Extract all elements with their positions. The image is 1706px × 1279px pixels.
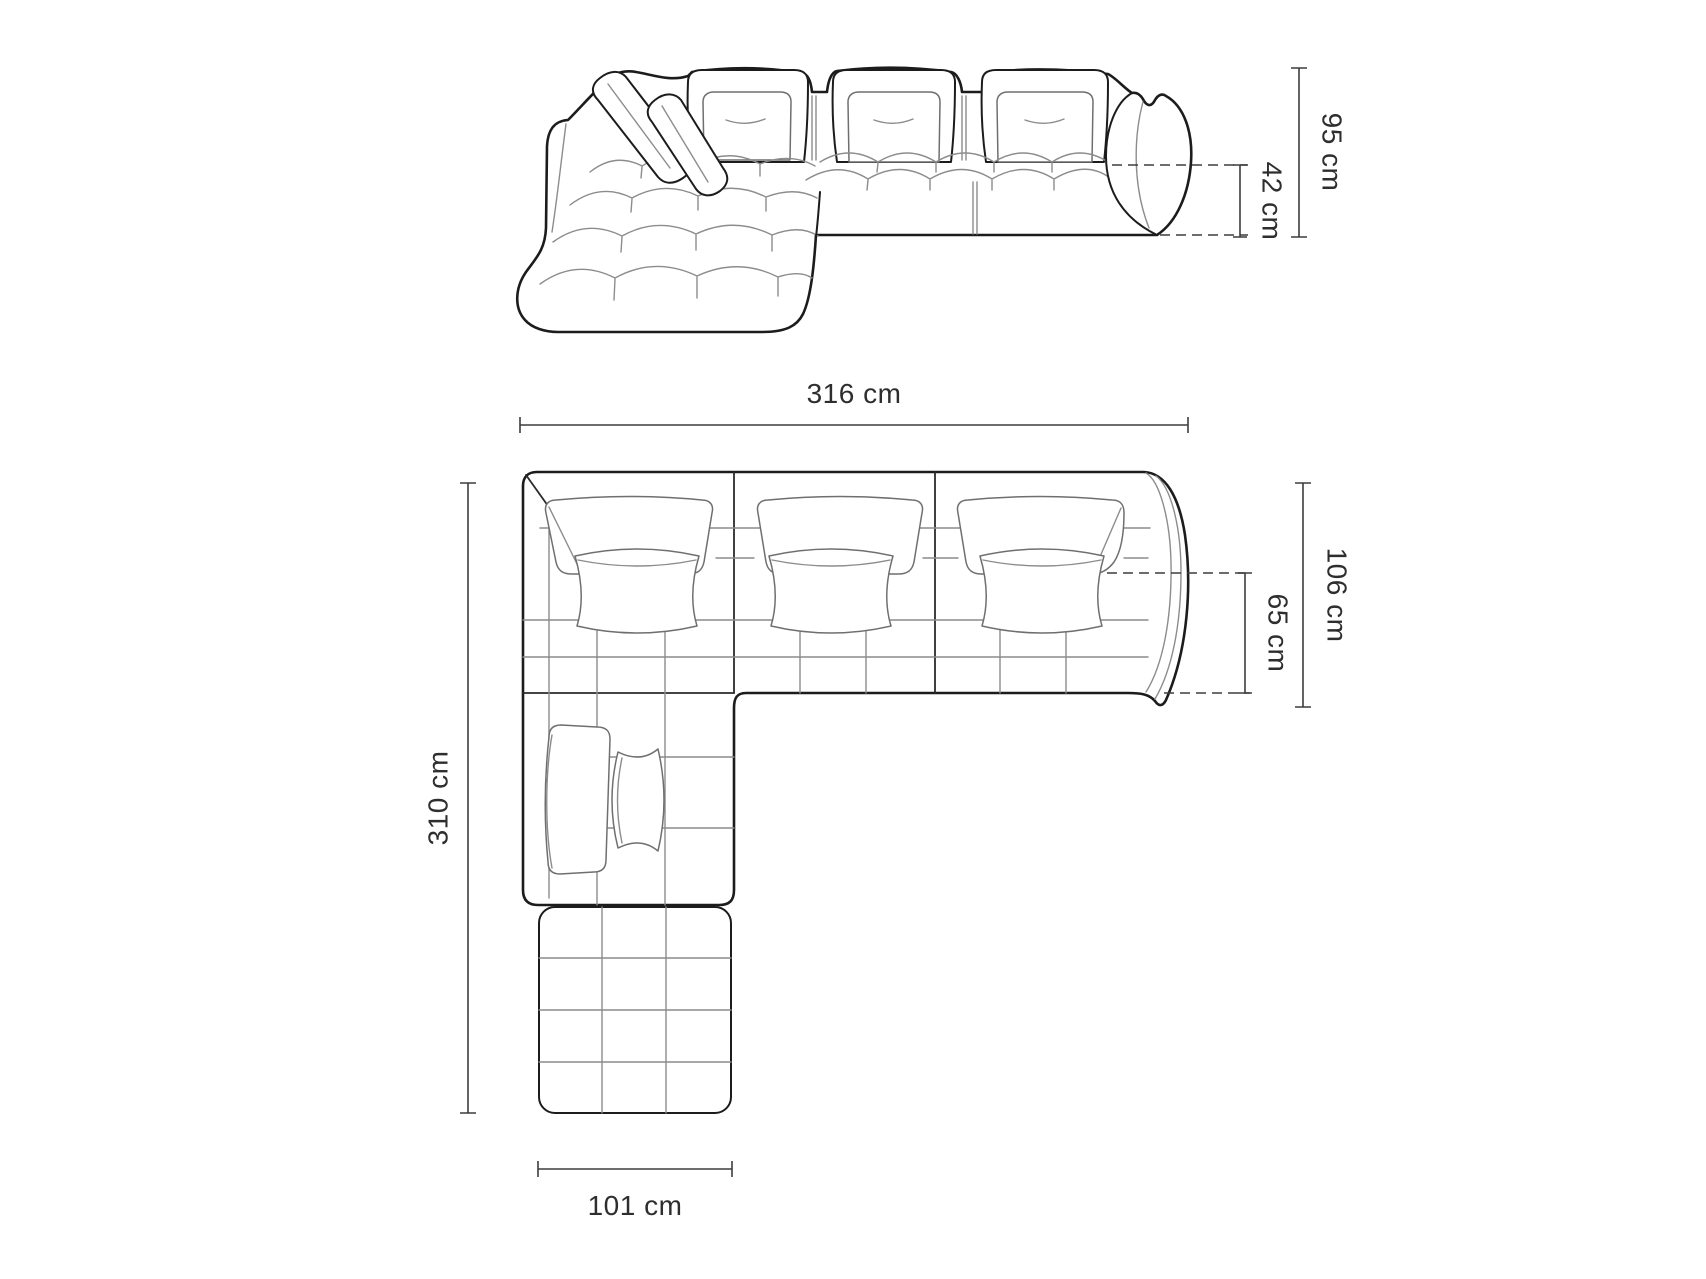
dim-label-total-length: 310 cm [423, 751, 454, 846]
dim-label-total-height: 95 cm [1317, 113, 1348, 192]
sofa-dimension-diagram: 95 cm 42 cm [0, 0, 1706, 1279]
dim-total-height: 95 cm [1291, 68, 1348, 237]
plan-throw-pillow-3 [980, 549, 1104, 633]
dim-label-seat-height: 42 cm [1257, 162, 1288, 241]
dim-label-total-depth: 106 cm [1322, 548, 1353, 643]
dim-total-length: 310 cm [423, 483, 477, 1113]
plan-chaise-pillow [612, 749, 664, 851]
plan-throw-pillow-2 [769, 549, 893, 633]
plan-chaise-back-cushion [545, 725, 610, 874]
diagram-canvas: 95 cm 42 cm [0, 0, 1706, 1279]
throw-pillow-2 [848, 92, 940, 162]
dim-total-width: 316 cm [520, 378, 1188, 433]
dim-label-seat-depth: 65 cm [1263, 594, 1294, 673]
throw-pillow-1 [703, 92, 791, 160]
dim-chaise-width: 101 cm [538, 1161, 732, 1221]
dim-seat-height: 42 cm [1233, 162, 1288, 241]
dim-total-depth: 106 cm [1295, 483, 1353, 707]
dim-label-total-width: 316 cm [807, 378, 902, 409]
dim-label-chaise-width: 101 cm [588, 1190, 683, 1221]
top-plan-view: 316 cm 310 cm 106 cm 65 cm 101 cm [423, 378, 1353, 1221]
plan-throw-pillow-1 [575, 549, 699, 633]
throw-pillow-3 [997, 92, 1093, 162]
dim-seat-depth: 65 cm [1238, 573, 1294, 693]
side-elevation-view: 95 cm 42 cm [517, 68, 1347, 332]
